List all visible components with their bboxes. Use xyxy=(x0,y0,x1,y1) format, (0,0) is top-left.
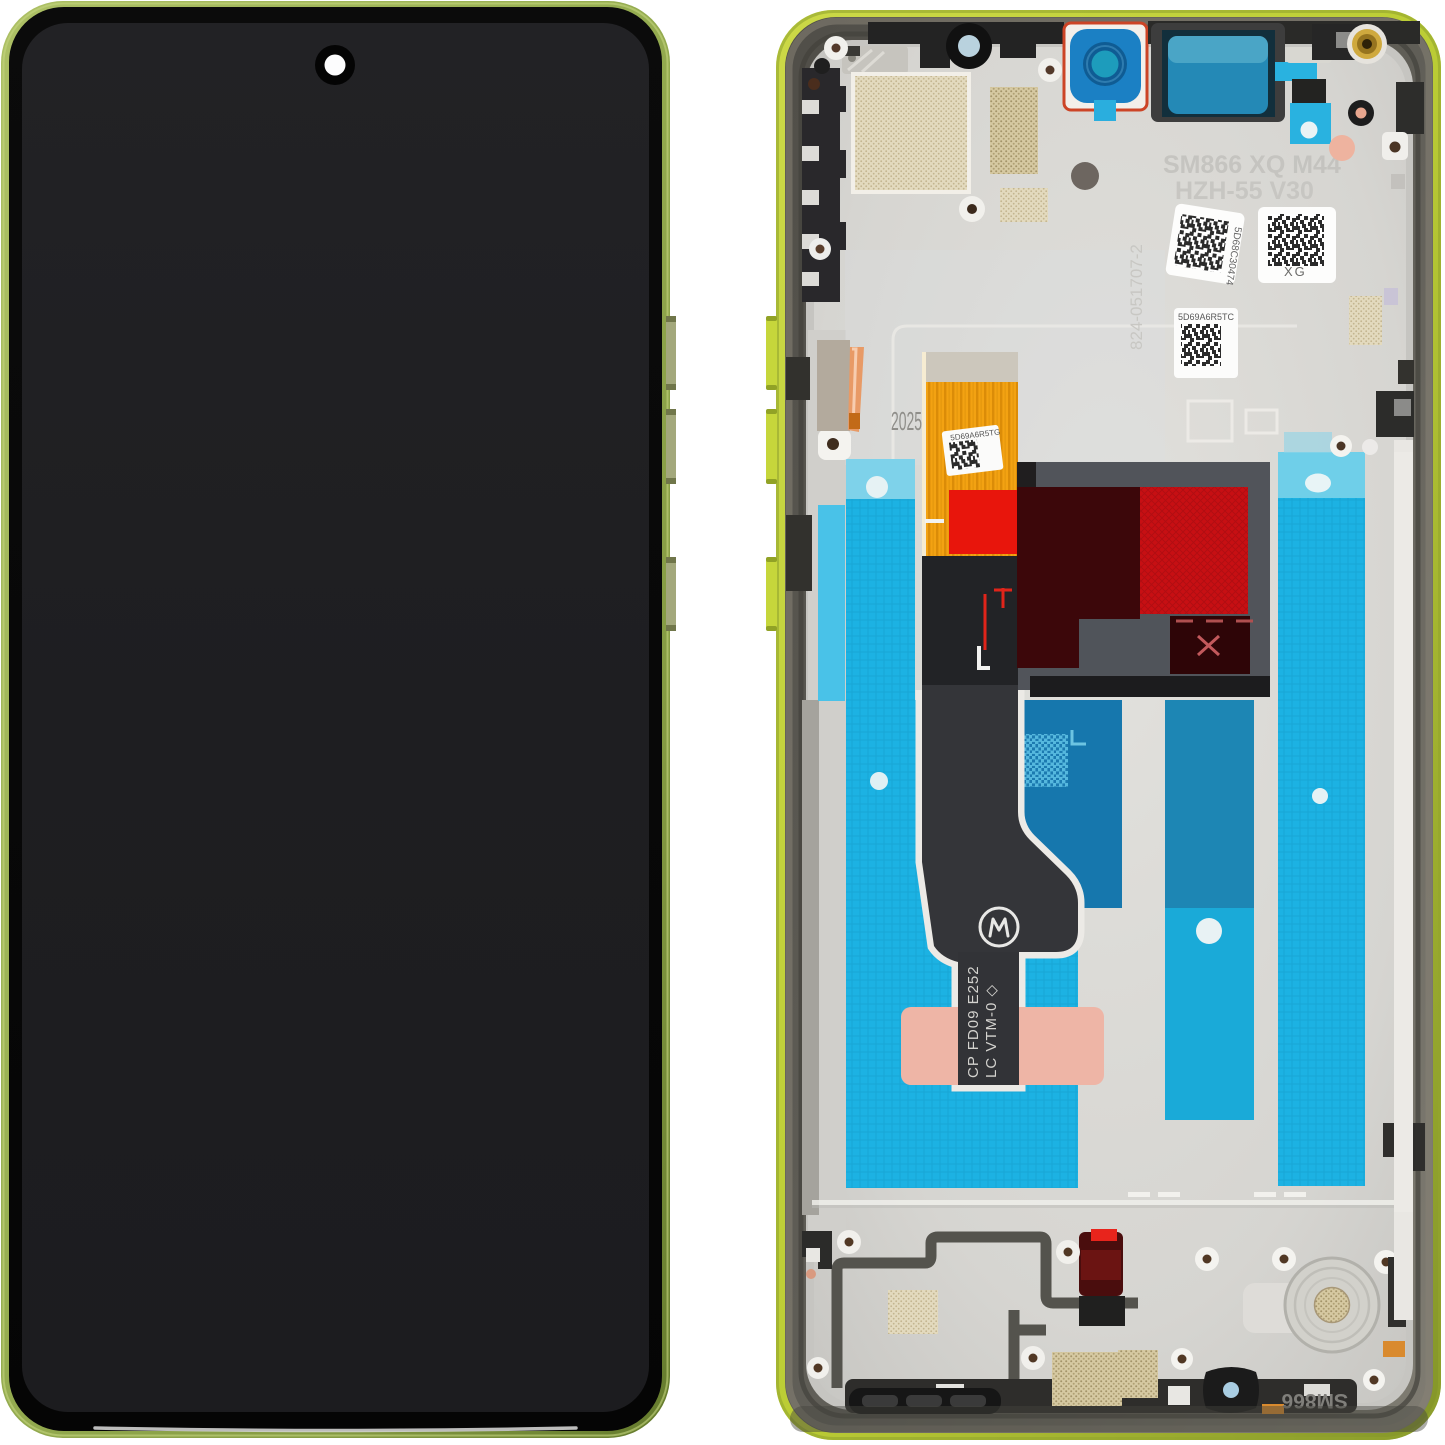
svg-text:824-051707-2: 824-051707-2 xyxy=(1127,244,1146,350)
svg-text:XG: XG xyxy=(1284,264,1307,279)
svg-text:LC VTM-0 ◇: LC VTM-0 ◇ xyxy=(983,984,1000,1078)
svg-text:CP FD09 E252: CP FD09 E252 xyxy=(965,965,982,1078)
svg-text:5D69A6R5TC: 5D69A6R5TC xyxy=(1178,312,1235,322)
svg-text:SM866 XQ M44: SM866 XQ M44 xyxy=(1163,151,1341,179)
svg-text:2025: 2025 xyxy=(891,406,922,436)
svg-text:HZH-55 V30: HZH-55 V30 xyxy=(1175,177,1314,205)
